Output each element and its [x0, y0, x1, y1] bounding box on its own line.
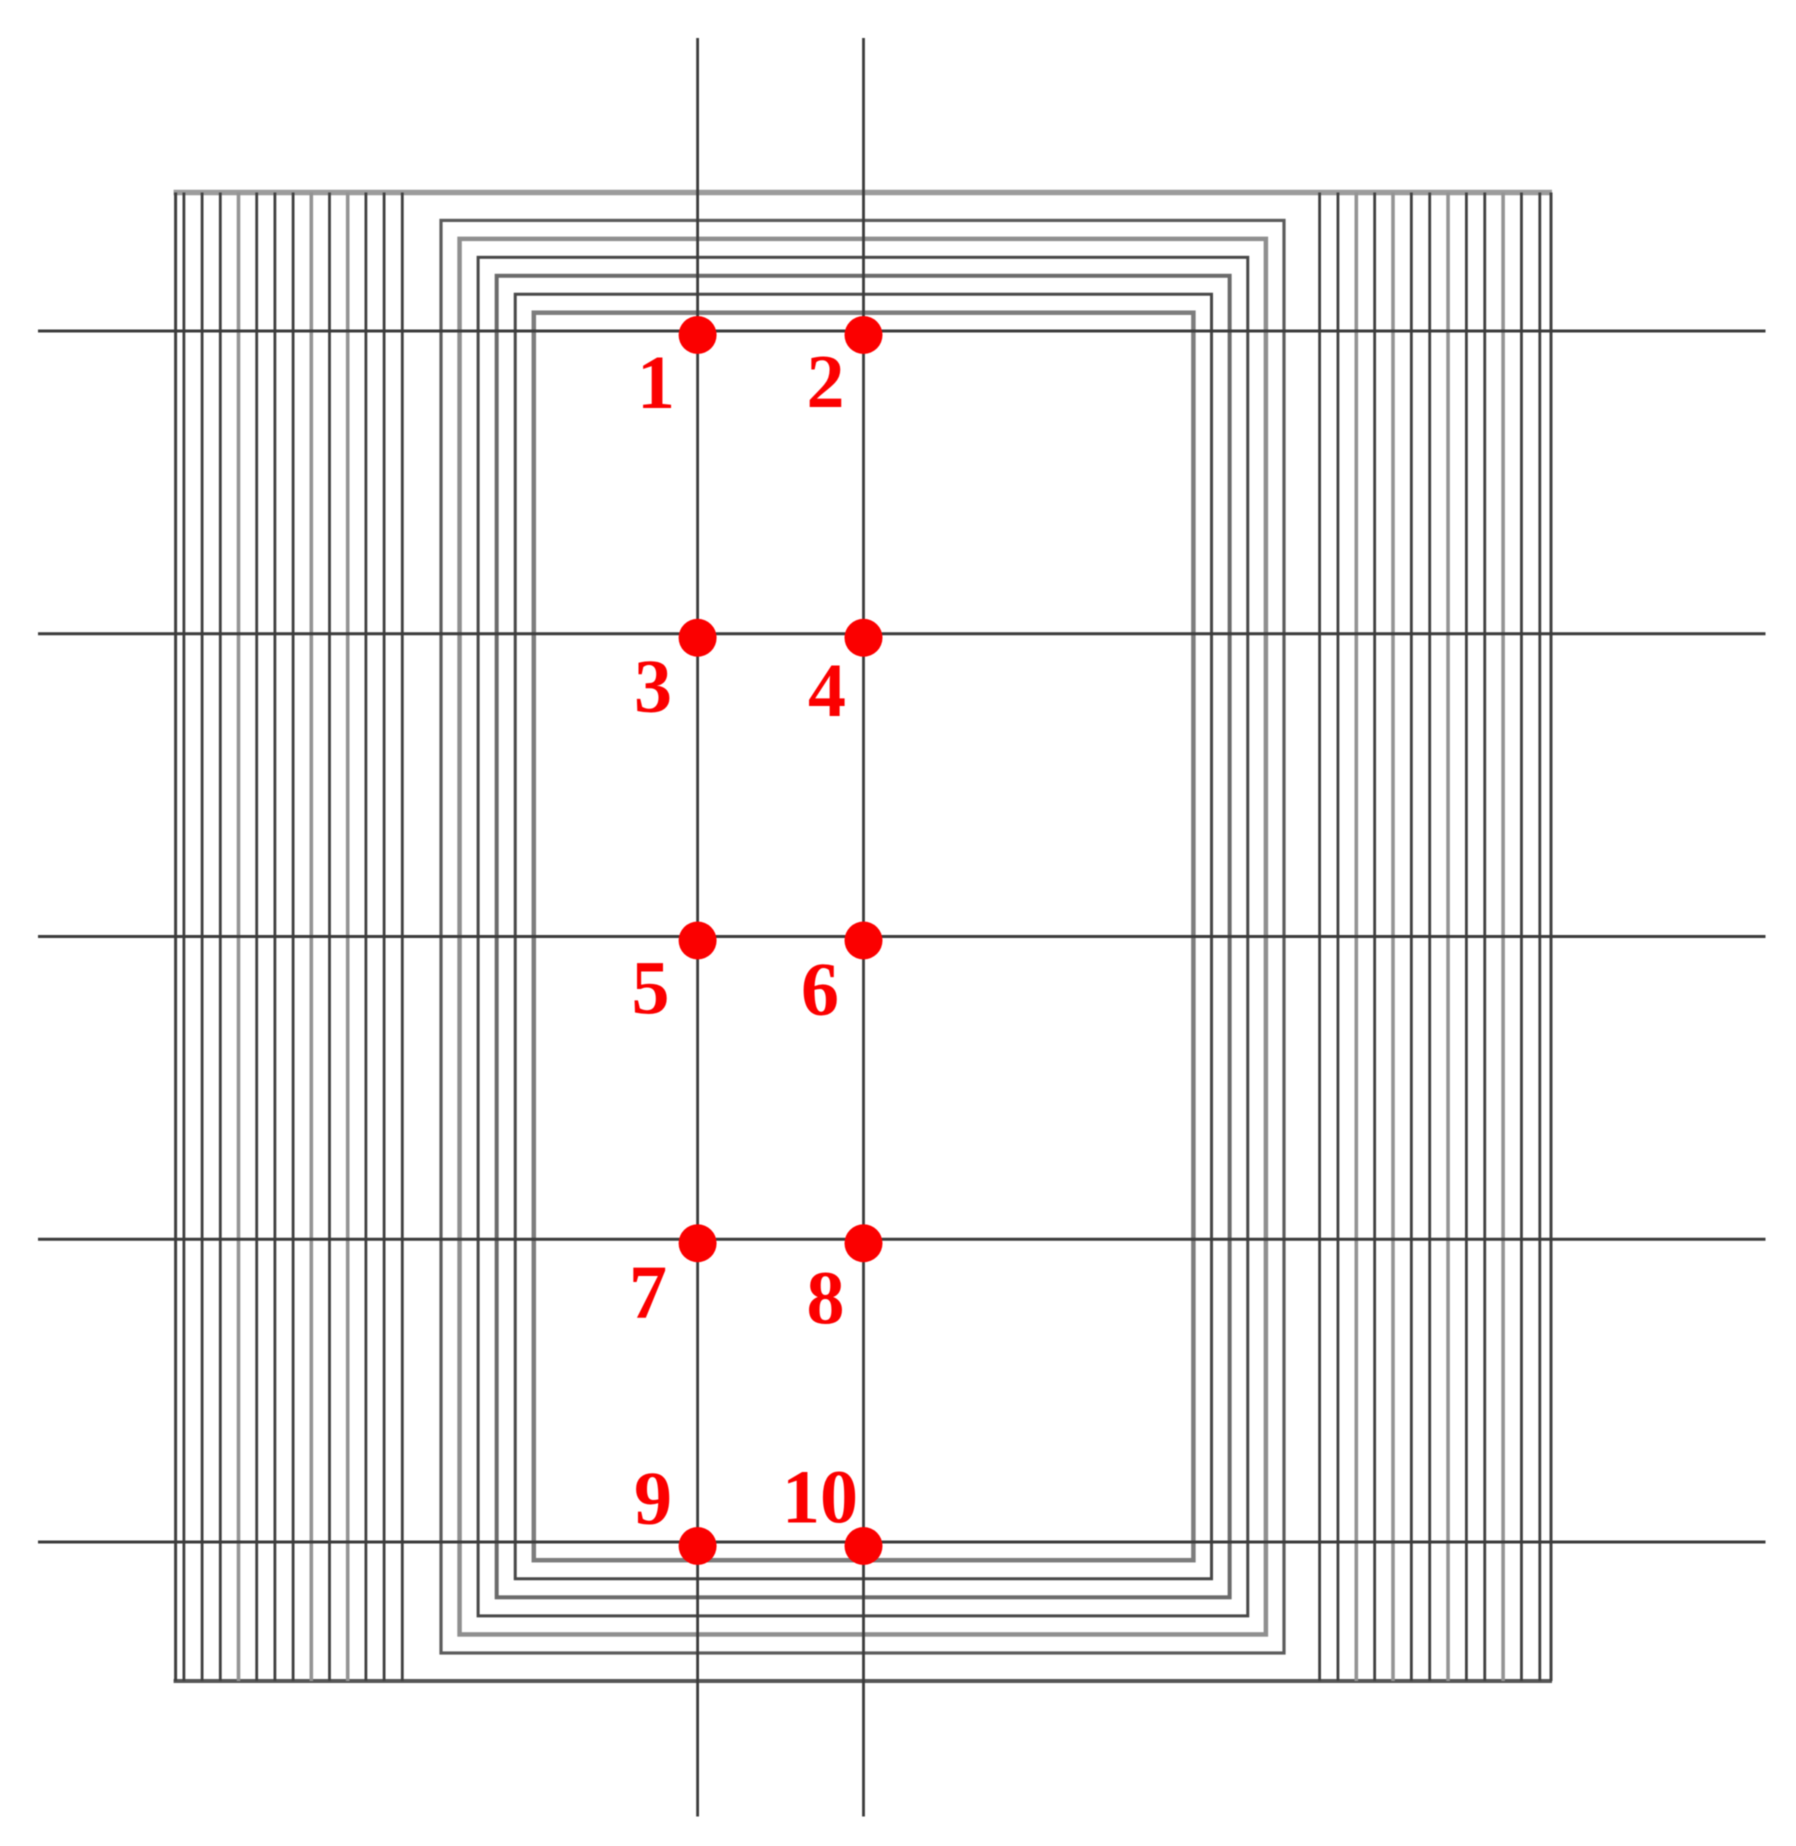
- svg-text:1: 1: [637, 341, 675, 425]
- svg-text:7: 7: [629, 1251, 667, 1335]
- svg-text:5: 5: [632, 947, 670, 1031]
- svg-text:10: 10: [782, 1456, 858, 1540]
- svg-text:3: 3: [634, 645, 672, 729]
- svg-text:2: 2: [807, 340, 845, 424]
- svg-text:6: 6: [801, 948, 839, 1032]
- svg-text:8: 8: [807, 1257, 845, 1341]
- svg-text:9: 9: [634, 1457, 672, 1541]
- svg-text:4: 4: [808, 649, 846, 733]
